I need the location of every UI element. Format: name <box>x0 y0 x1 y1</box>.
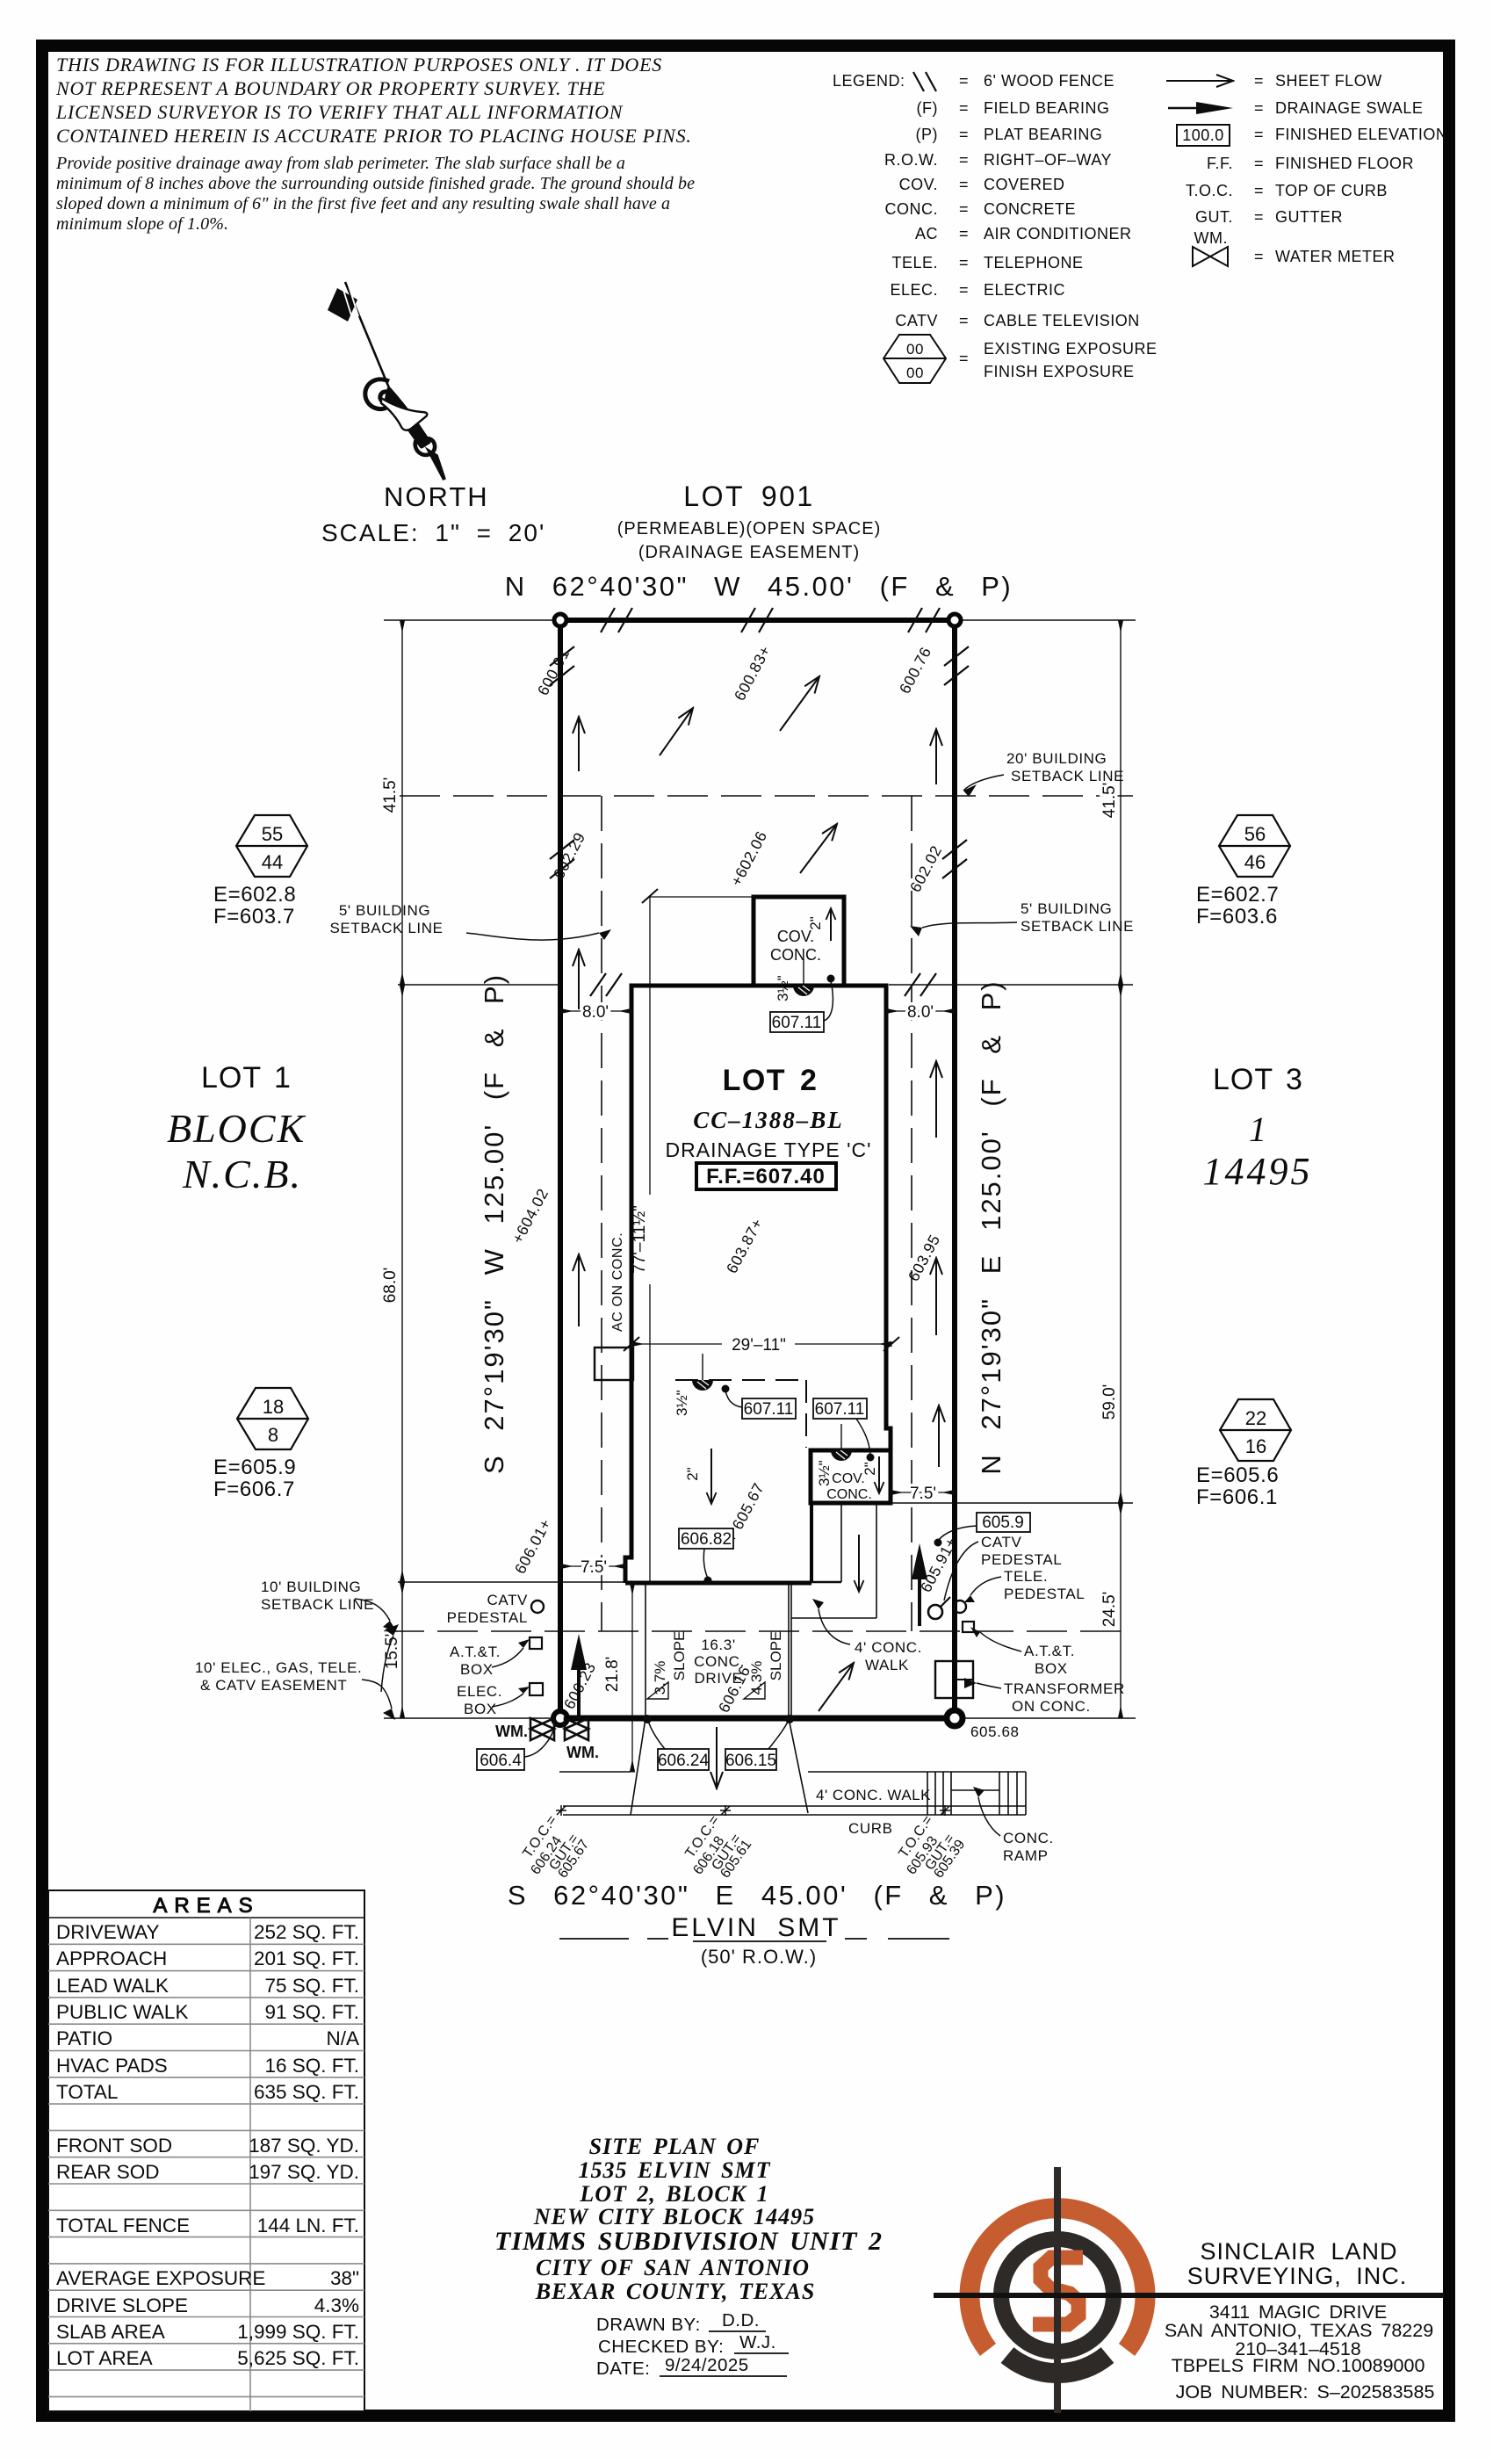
svg-text:=: = <box>1254 126 1264 143</box>
svg-text:CONC.: CONC. <box>694 1653 745 1670</box>
svg-text:E=605.6: E=605.6 <box>1196 1463 1279 1487</box>
svg-text:4.3%: 4.3% <box>314 2294 359 2316</box>
svg-text:(50' R.O.W.): (50' R.O.W.) <box>701 1946 817 1968</box>
svg-text:606.82: 606.82 <box>681 1530 732 1549</box>
svg-text:606.4: 606.4 <box>480 1752 522 1770</box>
svg-text:600.76: 600.76 <box>896 644 934 697</box>
svg-text:W.J.: W.J. <box>739 2332 776 2352</box>
svg-text:9/24/2025: 9/24/2025 <box>665 2355 749 2375</box>
svg-text:N.C.B.: N.C.B. <box>182 1152 302 1196</box>
svg-text:F=606.7: F=606.7 <box>213 1478 295 1501</box>
svg-text:SETBACK LINE: SETBACK LINE <box>1011 768 1124 784</box>
svg-text:COVERED: COVERED <box>984 176 1065 193</box>
svg-text:TELE.: TELE. <box>1004 1568 1048 1585</box>
svg-text:JOB NUMBER: S–202583585: JOB NUMBER: S–202583585 <box>1176 2381 1435 2403</box>
svg-text:F.F.: F.F. <box>1207 155 1233 172</box>
svg-text:+604.02: +604.02 <box>508 1185 552 1246</box>
svg-text:=: = <box>959 312 969 329</box>
svg-text:=: = <box>959 350 969 367</box>
svg-text:WATER METER: WATER METER <box>1275 248 1396 265</box>
svg-text:=: = <box>959 200 969 218</box>
svg-text:DATE:: DATE: <box>596 2359 650 2379</box>
svg-text:THIS DRAWING IS FOR ILLUSTRATI: THIS DRAWING IS FOR ILLUSTRATION PURPOSE… <box>56 54 662 76</box>
svg-text:CATV: CATV <box>895 312 938 329</box>
svg-text:TELEPHONE: TELEPHONE <box>984 254 1084 271</box>
svg-text:CONC.: CONC. <box>826 1487 872 1502</box>
svg-text:635 SQ. FT.: 635 SQ. FT. <box>254 2081 359 2103</box>
svg-text:=: = <box>959 281 969 299</box>
svg-text:PEDESTAL: PEDESTAL <box>1004 1586 1085 1602</box>
svg-text:91 SQ. FT.: 91 SQ. FT. <box>264 2001 359 2023</box>
svg-text:HVAC PADS: HVAC PADS <box>56 2055 168 2077</box>
svg-text:TIMMS SUBDIVISION UNIT 2: TIMMS SUBDIVISION UNIT 2 <box>494 2227 883 2256</box>
svg-text:=: = <box>959 126 969 143</box>
svg-text:R.O.W.: R.O.W. <box>884 151 938 169</box>
svg-text:4' CONC.: 4' CONC. <box>855 1639 922 1656</box>
svg-text:144 LN. FT.: 144 LN. FT. <box>257 2215 359 2236</box>
svg-text:=: = <box>1254 72 1264 90</box>
svg-text:41.5': 41.5' <box>381 777 400 813</box>
svg-text:F=603.6: F=603.6 <box>1196 905 1278 929</box>
svg-text:606.15: 606.15 <box>725 1752 776 1770</box>
svg-text:SCALE: 1" = 20': SCALE: 1" = 20' <box>321 519 545 546</box>
svg-text:LEAD WALK: LEAD WALK <box>56 1975 169 1997</box>
svg-text:GUTTER: GUTTER <box>1275 208 1343 226</box>
svg-text:606.01+: 606.01+ <box>511 1515 555 1576</box>
svg-text:605.68: 605.68 <box>970 1723 1020 1740</box>
svg-text:603.95: 603.95 <box>905 1232 943 1284</box>
svg-text:8.0': 8.0' <box>907 1003 934 1022</box>
svg-text:41.5': 41.5' <box>1100 783 1119 819</box>
svg-text:CONC.: CONC. <box>885 200 939 218</box>
svg-text:BEXAR COUNTY, TEXAS: BEXAR COUNTY, TEXAS <box>535 2279 816 2304</box>
svg-text:WM.: WM. <box>566 1744 599 1761</box>
svg-text:16: 16 <box>1245 1435 1266 1457</box>
svg-text:16 SQ. FT.: 16 SQ. FT. <box>264 2055 359 2077</box>
svg-text:WM.: WM. <box>1194 229 1228 247</box>
svg-text:LOT AREA: LOT AREA <box>56 2347 153 2369</box>
svg-text:CHECKED BY:: CHECKED BY: <box>598 2337 724 2357</box>
svg-text:252 SQ. FT.: 252 SQ. FT. <box>254 1921 359 1943</box>
svg-text:10' ELEC., GAS, TELE.: 10' ELEC., GAS, TELE. <box>195 1659 362 1676</box>
svg-text:LOT 2, BLOCK 1: LOT 2, BLOCK 1 <box>579 2181 768 2207</box>
svg-text:SETBACK LINE: SETBACK LINE <box>329 920 443 936</box>
svg-text:S 62°40'30" E 45.00' (F & P): S 62°40'30" E 45.00' (F & P) <box>508 1880 1006 1911</box>
svg-text:29'–11": 29'–11" <box>732 1336 786 1355</box>
svg-text:=: = <box>1254 248 1264 265</box>
svg-text:BLOCK: BLOCK <box>167 1106 307 1151</box>
svg-text:DRIVE SLOPE: DRIVE SLOPE <box>56 2294 188 2316</box>
svg-text:DRAINAGE TYPE 'C': DRAINAGE TYPE 'C' <box>666 1138 872 1161</box>
svg-text:DRIVE: DRIVE <box>695 1670 743 1687</box>
svg-text:LOT 3: LOT 3 <box>1213 1063 1303 1096</box>
svg-text:TOTAL: TOTAL <box>56 2081 118 2103</box>
svg-text:minimum of 8 inches above the: minimum of 8 inches above the surroundin… <box>56 174 695 193</box>
svg-text:6' WOOD FENCE: 6' WOOD FENCE <box>984 72 1114 90</box>
svg-text:2": 2" <box>862 1462 878 1476</box>
svg-text:NEW CITY BLOCK 14495: NEW CITY BLOCK 14495 <box>533 2204 815 2229</box>
svg-text:(PERMEABLE)(OPEN SPACE): (PERMEABLE)(OPEN SPACE) <box>617 519 881 538</box>
svg-text:BOX: BOX <box>464 1701 497 1717</box>
svg-text:56: 56 <box>1244 823 1266 845</box>
svg-text:603.87+: 603.87+ <box>723 1215 767 1275</box>
svg-text:F=606.1: F=606.1 <box>1196 1485 1278 1509</box>
svg-text:LOT 1: LOT 1 <box>201 1061 292 1095</box>
svg-text:2": 2" <box>807 916 824 930</box>
svg-text:FINISH EXPOSURE: FINISH EXPOSURE <box>984 363 1135 380</box>
svg-text:24.5': 24.5' <box>1100 1592 1119 1628</box>
svg-text:75 SQ. FT.: 75 SQ. FT. <box>264 1975 359 1997</box>
svg-text:8.0': 8.0' <box>582 1003 609 1022</box>
svg-text:4' CONC. WALK: 4' CONC. WALK <box>816 1787 931 1803</box>
svg-text:TBPELS FIRM NO.10089000: TBPELS FIRM NO.10089000 <box>1172 2355 1425 2376</box>
svg-text:CONTAINED HEREIN IS ACCURATE P: CONTAINED HEREIN IS ACCURATE PRIOR TO PL… <box>56 125 692 147</box>
svg-text:REAR SOD: REAR SOD <box>56 2161 160 2183</box>
svg-text:CONCRETE: CONCRETE <box>984 200 1076 218</box>
svg-text:00: 00 <box>906 365 924 381</box>
svg-text:AC: AC <box>915 225 938 242</box>
svg-text:+602.06: +602.06 <box>727 827 771 888</box>
svg-text:GUT.: GUT. <box>1195 208 1233 226</box>
svg-text:=: = <box>959 176 969 193</box>
svg-text:=: = <box>959 72 969 90</box>
svg-text:LOT 2: LOT 2 <box>723 1064 819 1097</box>
svg-text:S 27°19'30" W 125.00' (F & P): S 27°19'30" W 125.00' (F & P) <box>479 973 509 1474</box>
svg-text:N/A: N/A <box>326 2027 359 2049</box>
svg-text:COV.: COV. <box>899 176 938 193</box>
svg-text:197 SQ. YD.: 197 SQ. YD. <box>249 2161 359 2183</box>
svg-text:Provide positive drainage away: Provide positive drainage away from slab… <box>55 154 625 173</box>
svg-text:SURVEYING, INC.: SURVEYING, INC. <box>1187 2263 1408 2289</box>
svg-text:& CATV EASEMENT: & CATV EASEMENT <box>200 1677 347 1694</box>
svg-text:PUBLIC WALK: PUBLIC WALK <box>56 2001 188 2023</box>
svg-text:68.0': 68.0' <box>381 1268 400 1304</box>
svg-text:FIELD BEARING: FIELD BEARING <box>984 99 1110 117</box>
svg-text:607.11: 607.11 <box>772 1014 822 1032</box>
svg-text:=: = <box>1254 182 1264 199</box>
svg-text:=: = <box>1254 208 1264 226</box>
svg-text:SLAB AREA: SLAB AREA <box>56 2321 165 2343</box>
svg-text:187 SQ. YD.: 187 SQ. YD. <box>249 2135 359 2157</box>
svg-text:PEDESTAL: PEDESTAL <box>981 1551 1062 1568</box>
svg-text:LEGEND:: LEGEND: <box>833 72 905 90</box>
svg-text:8: 8 <box>268 1424 278 1446</box>
svg-text:=: = <box>959 254 969 271</box>
svg-text:AIR CONDITIONER: AIR CONDITIONER <box>984 225 1132 242</box>
svg-text:CATV: CATV <box>981 1534 1022 1550</box>
svg-text:AC ON CONC.: AC ON CONC. <box>610 1232 625 1332</box>
svg-text:59.0': 59.0' <box>1100 1384 1119 1420</box>
svg-text:CITY OF SAN ANTONIO: CITY OF SAN ANTONIO <box>536 2255 810 2280</box>
svg-text:44: 44 <box>262 851 283 873</box>
svg-text:201 SQ. FT.: 201 SQ. FT. <box>254 1947 359 1969</box>
svg-text:RAMP: RAMP <box>1003 1847 1049 1864</box>
svg-text:3½": 3½" <box>816 1460 833 1486</box>
svg-text:SINCLAIR LAND: SINCLAIR LAND <box>1200 2238 1397 2265</box>
svg-text:77'–11½": 77'–11½" <box>631 1205 649 1274</box>
svg-text:ELEC.: ELEC. <box>890 281 938 299</box>
svg-text:sloped down a minimum of 6" in: sloped down a minimum of 6" in the first… <box>56 194 670 213</box>
svg-text:00: 00 <box>906 341 924 358</box>
svg-text:=: = <box>959 225 969 242</box>
svg-text:22: 22 <box>1245 1407 1266 1429</box>
svg-text:=: = <box>959 99 969 117</box>
svg-text:PEDESTAL: PEDESTAL <box>447 1609 528 1626</box>
svg-text:EXISTING EXPOSURE: EXISTING EXPOSURE <box>984 340 1158 358</box>
svg-text:minimum slope of 1.0%.: minimum slope of 1.0%. <box>56 214 228 234</box>
svg-text:CATV: CATV <box>487 1592 529 1608</box>
svg-text:10' BUILDING: 10' BUILDING <box>261 1579 361 1595</box>
svg-text:CABLE TELEVISION: CABLE TELEVISION <box>984 312 1140 329</box>
svg-text:ELECTRIC: ELECTRIC <box>984 281 1065 299</box>
svg-text:5' BUILDING: 5' BUILDING <box>339 902 430 919</box>
svg-text:4.3%: 4.3% <box>748 1661 765 1695</box>
svg-text:APPROACH: APPROACH <box>56 1947 167 1969</box>
svg-text:E=602.7: E=602.7 <box>1196 883 1279 907</box>
svg-text:RIGHT–OF–WAY: RIGHT–OF–WAY <box>984 151 1112 169</box>
svg-text:CC–1388–BL: CC–1388–BL <box>693 1107 844 1133</box>
svg-text:ELEC.: ELEC. <box>457 1683 502 1700</box>
svg-text:N 27°19'30" E 125.00' (F & P): N 27°19'30" E 125.00' (F & P) <box>976 979 1006 1474</box>
svg-text:3.7%: 3.7% <box>652 1661 668 1695</box>
svg-text:E=602.8: E=602.8 <box>213 883 296 907</box>
svg-text:CONC.: CONC. <box>1003 1830 1054 1846</box>
svg-text:ON CONC.: ON CONC. <box>1012 1698 1091 1715</box>
svg-text:3½": 3½" <box>674 1390 690 1416</box>
svg-text:=: = <box>959 151 969 169</box>
svg-text:DRAINAGE SWALE: DRAINAGE SWALE <box>1275 99 1423 117</box>
svg-text:LICENSED SURVEYOR IS TO VERIFY: LICENSED SURVEYOR IS TO VERIFY THAT ALL … <box>55 101 624 123</box>
svg-text:COV.: COV. <box>832 1471 865 1486</box>
svg-text:N 62°40'30" W 45.00' (F & P): N 62°40'30" W 45.00' (F & P) <box>505 571 1013 602</box>
svg-text:DRIVEWAY: DRIVEWAY <box>56 1921 160 1943</box>
svg-text:SLOPE: SLOPE <box>671 1631 688 1681</box>
svg-text:TELE.: TELE. <box>891 254 938 271</box>
svg-text:WM.: WM. <box>495 1723 528 1740</box>
svg-text:FINISHED ELEVATION: FINISHED ELEVATION <box>1275 126 1447 143</box>
svg-text:PATIO: PATIO <box>56 2027 112 2049</box>
svg-text:21.8': 21.8' <box>603 1657 622 1693</box>
svg-text:607.11: 607.11 <box>815 1400 865 1419</box>
svg-text:=: = <box>1254 99 1264 117</box>
svg-text:BOX: BOX <box>1035 1660 1068 1677</box>
svg-text:E=605.9: E=605.9 <box>213 1456 296 1479</box>
svg-text:TOP OF CURB: TOP OF CURB <box>1275 182 1388 199</box>
svg-text:SITE PLAN OF: SITE PLAN OF <box>589 2134 761 2159</box>
svg-text:606.24: 606.24 <box>658 1752 710 1770</box>
svg-text:FRONT SOD: FRONT SOD <box>56 2135 172 2157</box>
svg-text:NORTH: NORTH <box>384 481 489 512</box>
svg-text:3½": 3½" <box>775 975 791 1001</box>
svg-text:600.83+: 600.83+ <box>731 642 775 703</box>
svg-text:SETBACK LINE: SETBACK LINE <box>1021 918 1134 935</box>
svg-text:1535 ELVIN SMT: 1535 ELVIN SMT <box>579 2157 771 2183</box>
svg-text:ELVIN SMT: ELVIN SMT <box>671 1913 840 1942</box>
svg-text:7.5': 7.5' <box>581 1558 607 1577</box>
svg-text:NOT REPRESENT A BOUNDARY OR PR: NOT REPRESENT A BOUNDARY OR PROPERTY SUR… <box>55 77 606 99</box>
svg-text:F=603.7: F=603.7 <box>213 905 295 929</box>
svg-text:D.D.: D.D. <box>722 2310 760 2330</box>
svg-text:TOTAL FENCE: TOTAL FENCE <box>56 2215 190 2236</box>
svg-text:(F): (F) <box>917 99 938 117</box>
svg-text:605.9: 605.9 <box>982 1514 1024 1532</box>
svg-text:18: 18 <box>263 1396 284 1418</box>
svg-text:14495: 14495 <box>1203 1150 1313 1193</box>
svg-text:A.T.&T.: A.T.&T. <box>450 1644 501 1660</box>
svg-text:LOT 901: LOT 901 <box>683 481 814 512</box>
svg-text:DRAWN BY:: DRAWN BY: <box>596 2315 701 2335</box>
svg-text:2": 2" <box>684 1467 701 1481</box>
svg-text:PLAT BEARING: PLAT BEARING <box>984 126 1102 143</box>
svg-text:F.F.=607.40: F.F.=607.40 <box>706 1165 826 1189</box>
svg-text:FINISHED FLOOR: FINISHED FLOOR <box>1275 155 1414 172</box>
svg-text:1,999 SQ. FT.: 1,999 SQ. FT. <box>237 2321 359 2343</box>
svg-text:AVERAGE EXPOSURE: AVERAGE EXPOSURE <box>56 2267 265 2289</box>
svg-text:5,625 SQ. FT.: 5,625 SQ. FT. <box>237 2347 359 2369</box>
svg-text:SLOPE: SLOPE <box>768 1631 784 1681</box>
svg-text:(P): (P) <box>916 126 939 143</box>
svg-text:16.3': 16.3' <box>701 1637 735 1653</box>
svg-text:1: 1 <box>1249 1109 1266 1149</box>
svg-text:SHEET FLOW: SHEET FLOW <box>1275 72 1382 90</box>
svg-text:5' BUILDING: 5' BUILDING <box>1021 900 1112 917</box>
svg-text:606.23: 606.23 <box>560 1659 599 1712</box>
svg-text:TRANSFORMER: TRANSFORMER <box>1004 1680 1125 1697</box>
svg-text:100.0: 100.0 <box>1182 126 1224 144</box>
svg-text:46: 46 <box>1244 851 1266 873</box>
svg-text:7.5': 7.5' <box>910 1485 936 1503</box>
svg-text:BOX: BOX <box>460 1661 494 1678</box>
svg-text:WALK: WALK <box>865 1657 909 1673</box>
svg-text:=: = <box>1254 155 1264 172</box>
svg-text:(DRAINAGE EASEMENT): (DRAINAGE EASEMENT) <box>638 543 860 562</box>
svg-text:T.O.C.: T.O.C. <box>1186 182 1233 199</box>
svg-text:607.11: 607.11 <box>744 1400 794 1419</box>
svg-text:A.T.&T.: A.T.&T. <box>1024 1643 1075 1659</box>
svg-text:CONC.: CONC. <box>770 946 821 964</box>
svg-text:38": 38" <box>330 2267 359 2289</box>
svg-text:55: 55 <box>262 823 283 845</box>
svg-text:20' BUILDING: 20' BUILDING <box>1006 750 1107 767</box>
svg-text:CURB: CURB <box>848 1820 893 1837</box>
svg-text:AREAS: AREAS <box>153 1894 259 1918</box>
